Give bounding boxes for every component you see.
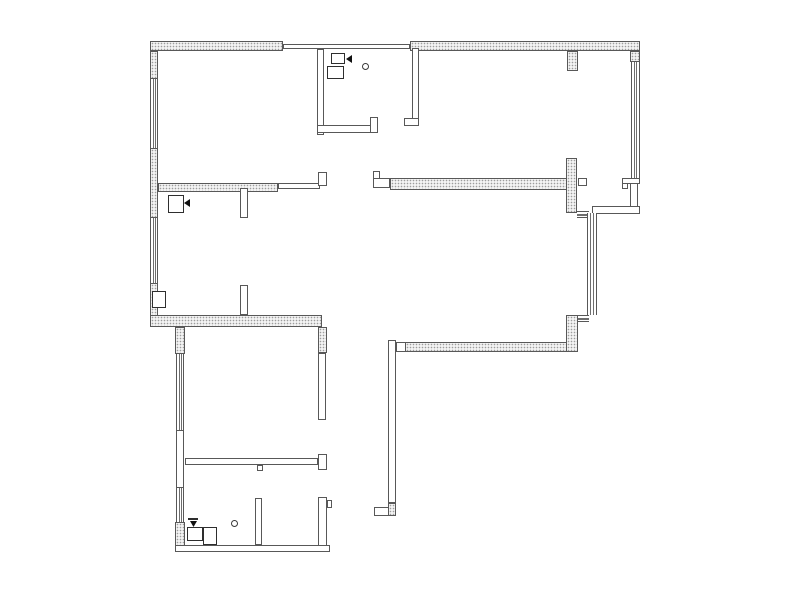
top-wall-center-thin	[283, 44, 410, 49]
top-wall-east	[410, 41, 640, 51]
dining-fixture-box-icon	[168, 195, 184, 213]
west-wall-mid	[150, 148, 158, 218]
bathroom2-fixture-box-1-icon	[187, 527, 203, 541]
bathroom1-fixture-box-1-icon	[331, 53, 345, 64]
bathroom1-east-foot	[404, 118, 419, 126]
bedroom3-door-jamb-tooth	[622, 183, 628, 189]
hall-wall-thin	[373, 178, 390, 188]
dining-door-arrow-icon	[184, 199, 190, 207]
bedroom2-south-stub	[257, 465, 263, 471]
east-step-wall	[592, 206, 640, 214]
bedroom2-west-window-1	[176, 354, 184, 430]
living-north-wall	[390, 178, 567, 190]
west-wall-window-2	[150, 218, 158, 283]
bathroom1-south-jamb	[370, 117, 378, 133]
south-wall	[175, 545, 330, 552]
bathroom1-west-wall	[317, 49, 324, 135]
bathroom1-south-wall	[317, 125, 373, 133]
bedroom2-west-window-2	[176, 488, 184, 522]
living-southwest-wall	[150, 315, 322, 327]
entry-wall-vertical	[388, 340, 396, 503]
entry-wall-box-icon	[374, 507, 389, 516]
east-wall-corner	[630, 51, 640, 62]
balcony-window-bottom-link	[577, 315, 589, 322]
bathroom1-door-arrow-icon	[346, 55, 352, 63]
bedroom2-west-upper	[175, 327, 185, 354]
dining-stub-south	[240, 285, 248, 315]
bathroom2-fixture-circle-icon	[231, 520, 238, 527]
east-wall-window	[631, 62, 640, 178]
bedroom2-south-cap	[318, 454, 327, 470]
top-wall-stub	[567, 51, 578, 71]
east-wall-mid-hatch	[566, 315, 578, 352]
bathroom1-fixture-box-2-icon	[327, 66, 344, 79]
bathroom2-valve-bar-icon	[188, 518, 198, 520]
bedroom1-door-jamb	[318, 172, 327, 186]
entry-wall-cap	[388, 503, 396, 516]
bathroom1-fixture-circle-icon	[362, 63, 369, 70]
cross-wall-vertical	[566, 158, 577, 213]
junction-wall	[318, 327, 327, 353]
cross-wall-stub-east	[578, 178, 587, 186]
bathroom2-east-tooth	[327, 500, 332, 508]
living-south-wall-thin	[396, 342, 406, 352]
dining-stub-north	[240, 188, 248, 218]
bedroom2-east-wall	[318, 353, 326, 420]
bedroom1-south-wall	[158, 183, 278, 192]
living-wall-fixture-box-icon	[152, 291, 166, 308]
bathroom1-east-wall	[412, 48, 419, 126]
bedroom1-south-wall-thin	[278, 183, 320, 189]
west-wall-window-1	[150, 79, 158, 148]
living-south-wall	[405, 342, 567, 352]
bedroom2-south-wall	[185, 458, 318, 465]
bathroom2-partition	[255, 498, 262, 545]
top-wall-west	[150, 41, 283, 51]
balcony-window	[587, 213, 597, 315]
west-wall-upper	[150, 51, 158, 79]
bathroom2-fixture-box-2-icon	[203, 527, 217, 545]
bedroom2-west-plain	[176, 430, 184, 488]
bathroom2-east-wall	[318, 497, 327, 552]
floor-plan-canvas	[0, 0, 800, 594]
